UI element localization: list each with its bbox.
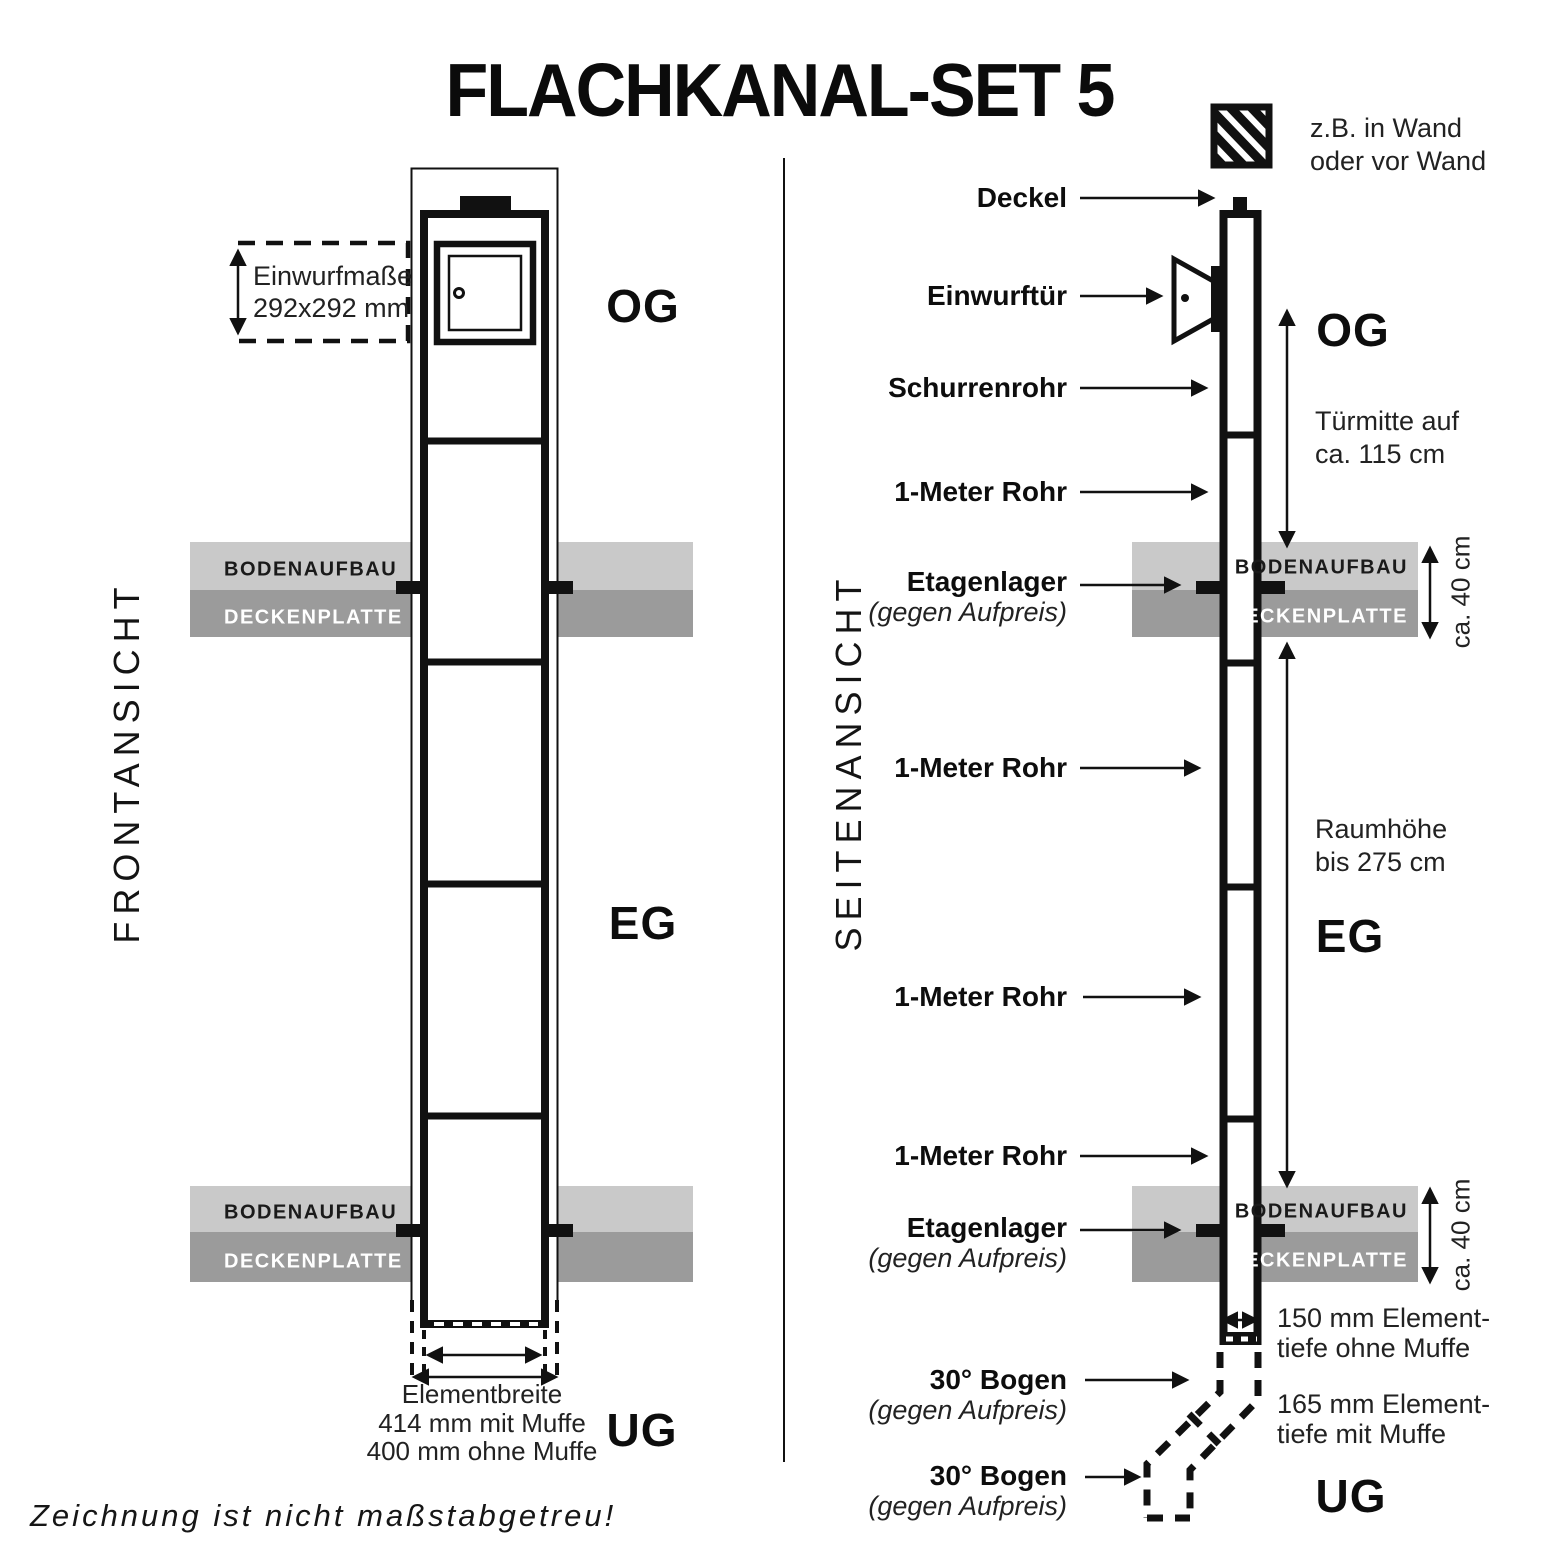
drawing-page: FLACHKANAL-SET 5 FRONTANSICHT SEITENANSI… (0, 0, 1559, 1559)
front-floor-og: OG (606, 279, 680, 333)
elementbreite-caption: Elementbreite 414 mm mit Muffe 400 mm oh… (332, 1380, 632, 1466)
band-deckenplatte-front-upper: DECKENPLATTE (224, 607, 403, 630)
side-floor-og: OG (1316, 303, 1390, 357)
wall-note-line1: z.B. in Wand (1310, 112, 1486, 145)
label-bogen-2: 30° Bogen(gegen Aufpreis) (868, 1461, 1067, 1521)
dim-ca40-upper: ca. 40 cm (1446, 536, 1477, 649)
label-rohr-4: 1-Meter Rohr (894, 1141, 1067, 1171)
label-etagenlager-2: Etagenlager(gegen Aufpreis) (868, 1213, 1067, 1273)
label-bogen-1: 30° Bogen(gegen Aufpreis) (868, 1365, 1067, 1425)
front-view-label: FRONTANSICHT (106, 580, 148, 943)
side-door (1174, 259, 1221, 341)
label-rohr-1: 1-Meter Rohr (894, 477, 1067, 507)
label-arrows (1080, 198, 1212, 1477)
label-rohr-3: 1-Meter Rohr (894, 982, 1067, 1012)
elementbreite-line1: Elementbreite (332, 1380, 632, 1409)
band-bodenaufbau-front-upper: BODENAUFBAU (224, 559, 397, 582)
label-rohr-2: 1-Meter Rohr (894, 753, 1067, 783)
side-view-label: SEITENANSICHT (828, 572, 870, 951)
dim-tuermitte: Türmitte auf ca. 115 cm (1315, 405, 1459, 471)
einwurfmasse-line2: 292x292 mm (253, 292, 412, 324)
side-deckel-knob (1233, 197, 1247, 211)
band-deckenplatte-side-lower: DECKENPLATTE (1229, 1250, 1408, 1273)
band-deckenplatte-side-upper: DECKENPLATTE (1229, 606, 1408, 629)
side-floor-eg: EG (1316, 909, 1384, 963)
einwurfmasse-note: Einwurfmaße 292x292 mm (253, 260, 412, 324)
label-deckel: Deckel (977, 183, 1067, 213)
band-bodenaufbau-front-lower: BODENAUFBAU (224, 1202, 397, 1225)
label-etagenlager-1: Etagenlager(gegen Aufpreis) (868, 567, 1067, 627)
dim-depth-no-socket: 150 mm Element- tiefe ohne Muffe (1277, 1303, 1490, 1363)
label-einwurftuer: Einwurftür (927, 281, 1067, 311)
wall-note: z.B. in Wand oder vor Wand (1310, 112, 1486, 178)
dim-raumhoehe: Raumhöhe bis 275 cm (1315, 813, 1447, 879)
wall-note-line2: oder vor Wand (1310, 145, 1486, 178)
label-schurrenrohr: Schurrenrohr (888, 373, 1067, 403)
dim-ca40-lower: ca. 40 cm (1446, 1179, 1477, 1292)
einwurfmasse-line1: Einwurfmaße (253, 260, 412, 292)
dim-depth-socket: 165 mm Element- tiefe mit Muffe (1277, 1389, 1490, 1449)
elementbreite-line3: 400 mm ohne Muffe (332, 1437, 632, 1466)
side-door-knob-icon (1181, 294, 1189, 302)
band-bodenaufbau-side-upper: BODENAUFBAU (1235, 557, 1408, 580)
band-bodenaufbau-side-lower: BODENAUFBAU (1235, 1201, 1408, 1224)
front-floor-eg: EG (609, 896, 677, 950)
scale-disclaimer: Zeichnung ist nicht maßstabgetreu! (30, 1498, 616, 1534)
front-cap (460, 196, 511, 212)
band-deckenplatte-front-lower: DECKENPLATTE (224, 1251, 403, 1274)
bend-pipe-dashed (1147, 1352, 1258, 1518)
front-door-knob-icon (455, 289, 464, 298)
side-floor-ug: UG (1316, 1469, 1387, 1523)
front-door (437, 244, 533, 342)
elementbreite-line2: 414 mm mit Muffe (332, 1409, 632, 1438)
